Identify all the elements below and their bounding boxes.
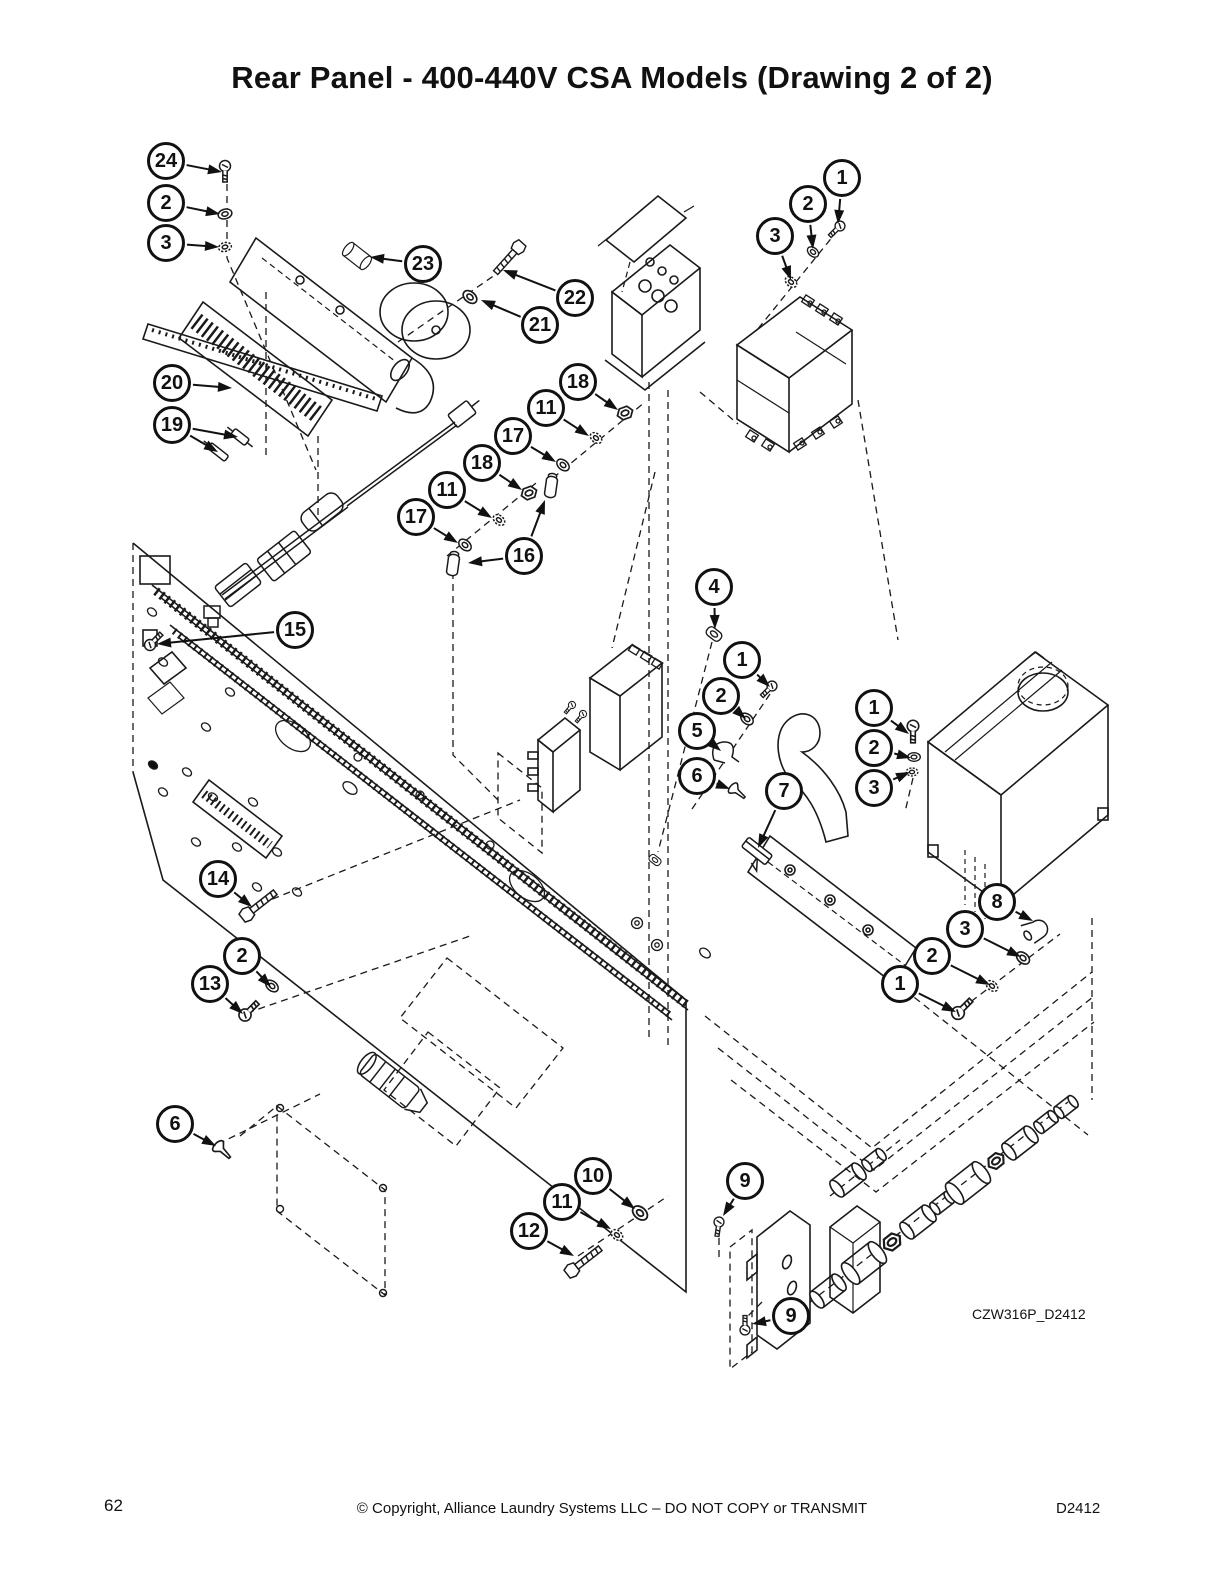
callout-number: 21	[529, 315, 551, 335]
callout-number: 12	[518, 1221, 540, 1241]
callout-number: 17	[405, 507, 427, 527]
callout-balloon: 2	[855, 729, 893, 767]
callout-balloon: 10	[574, 1157, 612, 1195]
wire-ferrule	[225, 424, 255, 450]
cable-clamp-5	[713, 742, 739, 763]
callout-balloon: 21	[521, 306, 559, 344]
pin-22	[491, 238, 528, 277]
callout-balloon: 1	[723, 641, 761, 679]
callout-balloon: 23	[404, 245, 442, 283]
callout-balloon: 2	[223, 937, 261, 975]
callout-number: 2	[715, 686, 726, 706]
drawing-code-label: CZW316P_D2412	[972, 1306, 1086, 1322]
callout-number: 7	[778, 781, 789, 801]
clip-7	[735, 837, 772, 873]
callout-balloon: 9	[726, 1162, 764, 1200]
access-cover-plate	[277, 1105, 387, 1297]
callout-number: 6	[691, 766, 702, 786]
callout-number: 20	[161, 373, 183, 393]
callout-balloon: 16	[505, 537, 543, 575]
callout-number: 16	[513, 546, 535, 566]
callout-number: 2	[926, 946, 937, 966]
page-title: Rear Panel - 400-440V CSA Models (Drawin…	[0, 60, 1224, 96]
callout-number: 23	[412, 254, 434, 274]
callout-number: 2	[236, 946, 247, 966]
callout-number: 1	[736, 650, 747, 670]
callout-number: 2	[160, 193, 171, 213]
callout-number: 8	[991, 892, 1002, 912]
copyright-notice: © Copyright, Alliance Laundry Systems LL…	[0, 1500, 1224, 1517]
callout-balloon: 18	[463, 444, 501, 482]
callout-number: 24	[155, 151, 177, 171]
callout-balloon: 20	[153, 364, 191, 402]
rear-panel	[133, 543, 712, 1292]
callout-balloon: 11	[543, 1183, 581, 1221]
callout-balloon: 4	[695, 568, 733, 606]
callout-balloon: 17	[494, 417, 532, 455]
clamp-8	[1018, 913, 1051, 945]
capacitor	[380, 283, 448, 341]
callout-number: 3	[769, 226, 780, 246]
callout-balloon: 11	[527, 389, 565, 427]
callout-balloon: 2	[702, 677, 740, 715]
callout-balloon: 19	[153, 406, 191, 444]
callout-number: 2	[802, 194, 813, 214]
callout-number: 15	[284, 620, 306, 640]
callout-number: 11	[436, 480, 457, 500]
callout-balloon: 17	[397, 498, 435, 536]
callout-balloon: 22	[556, 279, 594, 317]
callout-number: 22	[564, 288, 586, 308]
callout-balloon: 13	[191, 965, 229, 1003]
callout-number: 10	[582, 1166, 604, 1186]
spacer-23	[340, 241, 373, 272]
callout-balloon: 2	[147, 184, 185, 222]
callout-balloon: 7	[765, 772, 803, 810]
callout-number: 11	[551, 1192, 572, 1212]
callout-number: 11	[535, 398, 556, 418]
callout-balloon: 12	[510, 1212, 548, 1250]
callout-number: 19	[161, 415, 183, 435]
transformer-assembly	[598, 196, 705, 390]
relay-block-assembly	[528, 644, 663, 812]
projection-lines	[133, 172, 1094, 1369]
callout-balloon: 3	[946, 910, 984, 948]
callout-balloon: 15	[276, 611, 314, 649]
callout-number: 3	[868, 778, 879, 798]
callout-balloon: 2	[913, 937, 951, 975]
contactor	[737, 295, 852, 452]
callout-number: 1	[894, 974, 905, 994]
callout-balloon: 2	[789, 185, 827, 223]
callout-number: 18	[471, 453, 493, 473]
callout-balloon: 3	[756, 217, 794, 255]
callout-number: 6	[169, 1114, 180, 1134]
callout-balloon: 5	[678, 712, 716, 750]
callout-balloon: 8	[978, 883, 1016, 921]
callout-balloon: 24	[147, 142, 185, 180]
callout-balloon: 9	[772, 1297, 810, 1335]
callout-balloon: 6	[156, 1105, 194, 1143]
callout-number: 1	[868, 698, 879, 718]
callout-balloon: 6	[678, 757, 716, 795]
callout-number: 13	[199, 974, 221, 994]
callout-balloon: 1	[881, 965, 919, 1003]
callout-number: 2	[868, 738, 879, 758]
callout-number: 9	[739, 1171, 750, 1191]
callout-number: 17	[502, 426, 524, 446]
callout-number: 9	[785, 1306, 796, 1326]
callout-number: 14	[207, 869, 229, 889]
control-box-cover	[928, 652, 1108, 919]
strain-relief	[354, 1049, 431, 1118]
callout-balloon: 1	[855, 689, 893, 727]
wire-terminal	[202, 438, 229, 461]
callout-balloon: 3	[855, 769, 893, 807]
callout-number: 1	[836, 168, 847, 188]
callout-number: 18	[567, 372, 589, 392]
callout-number: 3	[160, 233, 171, 253]
manual-page: Rear Panel - 400-440V CSA Models (Drawin…	[0, 0, 1224, 1584]
callout-balloon: 14	[199, 860, 237, 898]
callout-balloon: 3	[147, 224, 185, 262]
callout-number: 3	[959, 919, 970, 939]
callout-balloon: 1	[823, 159, 861, 197]
callout-balloon: 18	[559, 363, 597, 401]
callout-balloon: 11	[428, 471, 466, 509]
callout-number: 5	[691, 721, 702, 741]
wire-harness	[202, 394, 485, 627]
document-code: D2412	[1056, 1500, 1100, 1517]
callout-number: 4	[708, 577, 719, 597]
